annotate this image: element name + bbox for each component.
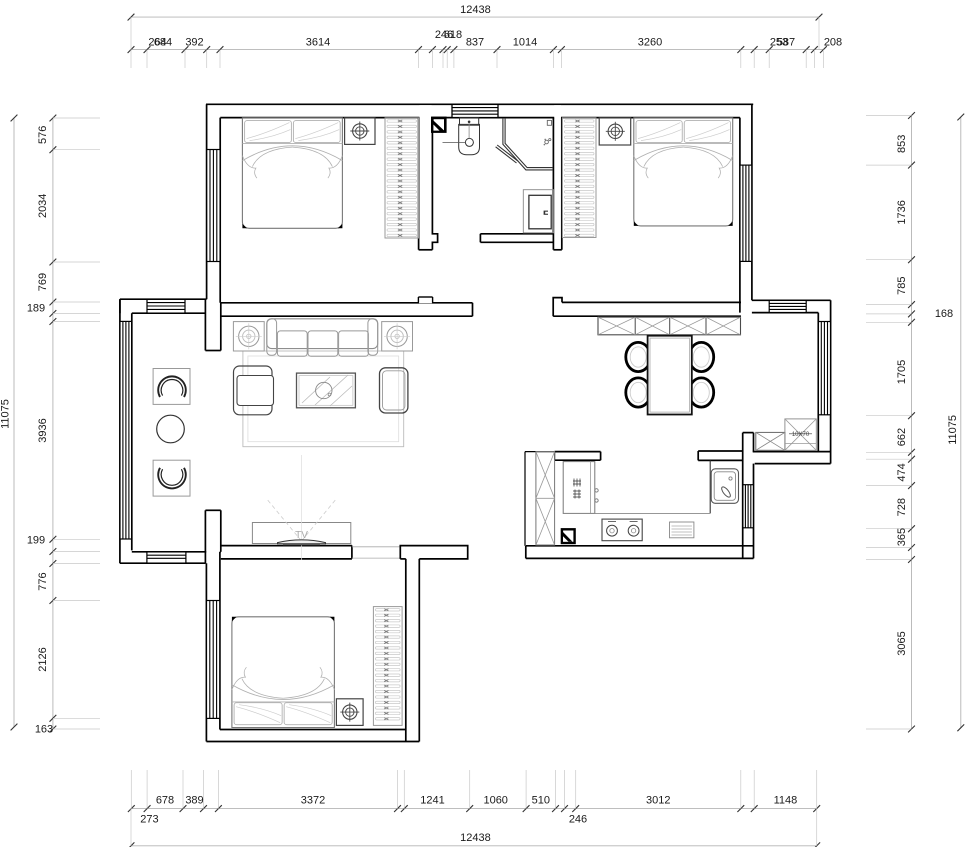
svg-text:1014: 1014 [513,37,537,49]
svg-text:1705: 1705 [896,360,908,384]
svg-text:728: 728 [896,498,908,516]
svg-text:246: 246 [569,814,587,826]
svg-text:576: 576 [37,126,49,144]
svg-text:12438: 12438 [460,4,491,16]
svg-text:678: 678 [156,795,174,807]
svg-text:11075: 11075 [0,399,12,429]
svg-text:11075: 11075 [947,415,959,445]
svg-text:1241: 1241 [420,795,444,807]
svg-text:168: 168 [935,308,953,320]
svg-text:273: 273 [140,814,158,826]
svg-text:3260: 3260 [638,37,662,49]
svg-text:189: 189 [27,303,45,315]
svg-text:10X70: 10X70 [792,432,810,438]
svg-text:1736: 1736 [896,200,908,224]
svg-text:1060: 1060 [483,795,507,807]
svg-text:2034: 2034 [37,194,49,218]
svg-text:1148: 1148 [774,795,798,807]
svg-text:163: 163 [35,724,53,736]
svg-text:199: 199 [27,535,45,547]
svg-text:365: 365 [896,528,908,546]
svg-text:474: 474 [896,463,908,481]
svg-text:618: 618 [444,29,462,41]
svg-text:392: 392 [185,37,203,49]
svg-text:769: 769 [37,273,49,291]
svg-text:3372: 3372 [301,795,325,807]
svg-text:3012: 3012 [646,795,670,807]
svg-text:510: 510 [532,795,550,807]
svg-text:662: 662 [896,428,908,446]
svg-text:TV: TV [295,530,308,541]
svg-text:853: 853 [896,135,908,153]
svg-text:3936: 3936 [37,418,49,442]
svg-text:587: 587 [777,37,795,49]
svg-text:837: 837 [466,37,484,49]
svg-text:3614: 3614 [306,37,330,49]
svg-text:208: 208 [824,37,842,49]
svg-text:389: 389 [185,795,203,807]
svg-text:684: 684 [154,37,172,49]
svg-text:776: 776 [37,572,49,590]
svg-text:785: 785 [896,277,908,295]
svg-text:12438: 12438 [460,832,491,844]
svg-text:3065: 3065 [896,631,908,655]
svg-text:2126: 2126 [37,647,49,671]
